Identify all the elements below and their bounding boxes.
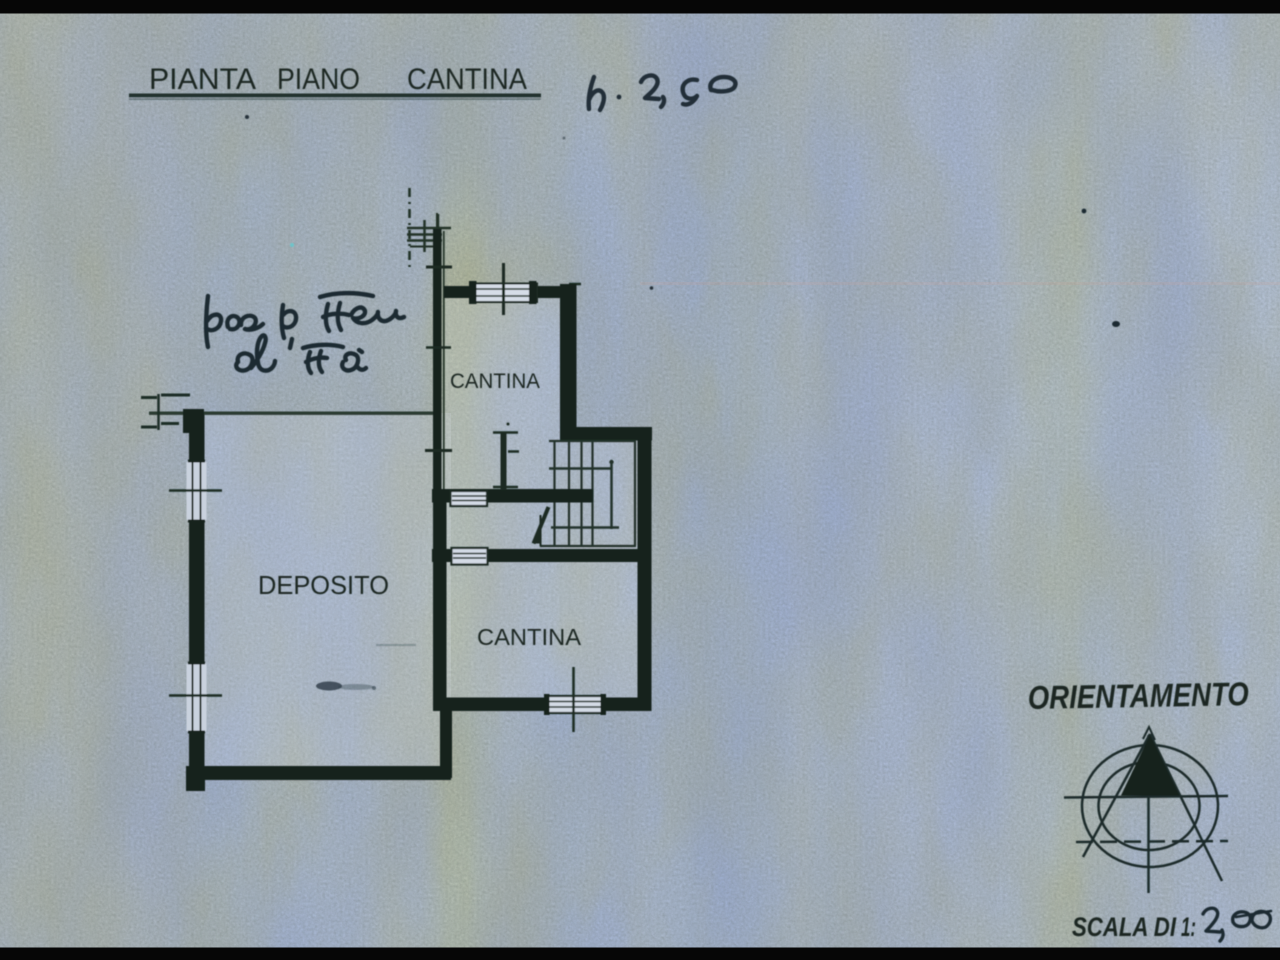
svg-text:ORIENTAMENTO: ORIENTAMENTO — [1027, 675, 1249, 716]
svg-text:CANTINA: CANTINA — [477, 624, 582, 650]
svg-text:DEPOSITO: DEPOSITO — [258, 570, 389, 600]
svg-text:SCALA DI: SCALA DI — [1072, 912, 1176, 942]
svg-text:PIANTA: PIANTA — [149, 63, 256, 96]
svg-text:PIANO: PIANO — [277, 63, 360, 96]
svg-text:CANTINA: CANTINA — [450, 370, 540, 393]
svg-text:CANTINA: CANTINA — [407, 63, 527, 96]
svg-text:1:: 1: — [1181, 912, 1196, 942]
